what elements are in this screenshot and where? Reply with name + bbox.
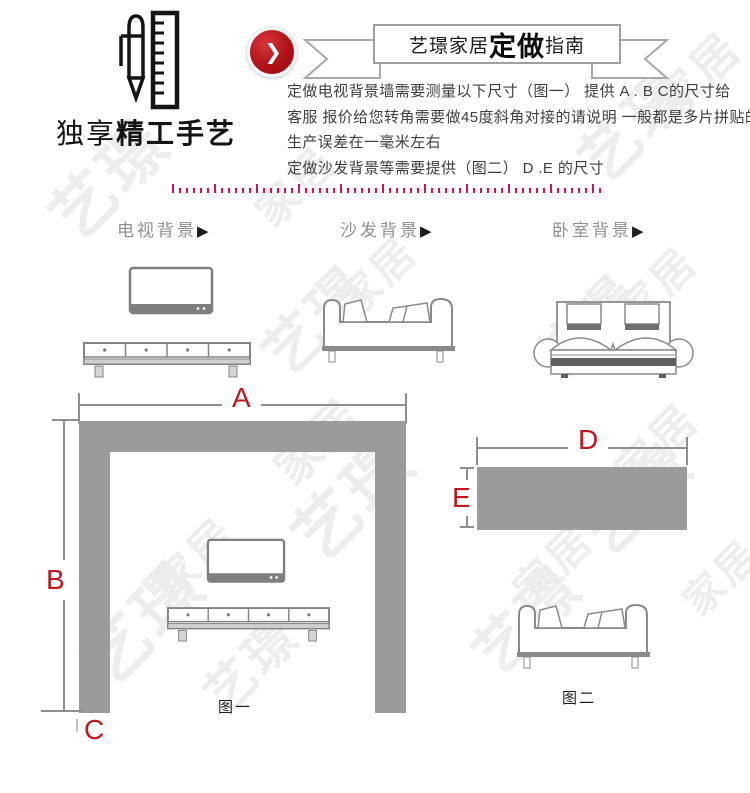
- intro-paragraph: 定做电视背景墙需要测量以下尺寸（图一） 提供 A . B C的尺寸给 客服 报价…: [287, 79, 739, 181]
- intro-line: 定做电视背景墙需要测量以下尺寸（图一） 提供 A . B C的尺寸给: [287, 79, 739, 105]
- category-sofa-background: 沙发背景▶: [340, 216, 432, 241]
- wall-left-leg: [79, 452, 110, 713]
- dim-tick: [476, 437, 478, 465]
- figure1-caption: 图一: [218, 696, 252, 717]
- dim-tick: [52, 419, 78, 421]
- intro-line: 定做沙发背景等需要提供（图二） D .E 的尺寸: [287, 156, 739, 182]
- chevron-right-icon: ❯: [264, 40, 282, 65]
- logo-slogan: 独享精工手艺: [56, 112, 276, 152]
- figure2-caption: 图二: [562, 687, 596, 708]
- category-bedroom-background: 卧室背景▶: [552, 216, 644, 241]
- tv-console-icon: [166, 606, 331, 647]
- logo-slogan-bold: 精工手艺: [116, 118, 236, 149]
- pen-ruler-icon: [116, 8, 184, 112]
- tv-console-icon: [82, 341, 252, 383]
- sofa-icon: [510, 598, 660, 670]
- tv-icon: [128, 266, 214, 322]
- triangle-right-icon: ▶: [197, 223, 209, 240]
- dim-tick: [460, 526, 474, 528]
- banner-suffix: 指南: [545, 31, 585, 58]
- wall-top-bar: [79, 421, 406, 452]
- sofa-wall-panel: [477, 467, 687, 530]
- play-button[interactable]: ❯: [247, 27, 297, 77]
- banner-title: 艺璟家居定做指南: [373, 24, 621, 64]
- dim-tick: [460, 467, 474, 469]
- page: { "logo": { "text_light": "独享", "text_bo…: [0, 0, 750, 793]
- category-label: 卧室背景: [552, 221, 632, 240]
- logo-slogan-light: 独享: [56, 118, 116, 149]
- category-label: 沙发背景: [340, 221, 420, 240]
- dim-label-c: C: [78, 716, 110, 744]
- tv-icon: [206, 538, 286, 590]
- dim-label-a: A: [222, 382, 261, 414]
- dim-tick: [686, 437, 688, 465]
- dim-tick: [405, 393, 407, 424]
- intro-line: 客服 报价给您转角需要做45度斜角对接的请说明 一般都是多片拼贴的: [287, 105, 739, 131]
- dim-tick: [41, 710, 83, 712]
- dotted-separator: [172, 184, 602, 193]
- dim-tick: [78, 393, 80, 424]
- dim-label-e: E: [448, 480, 475, 516]
- intro-line: 生产误差在一毫米左右: [287, 130, 739, 156]
- bed-icon: [531, 296, 696, 378]
- figure2-sofa-wall-diagram: D E 图二: [450, 430, 730, 730]
- triangle-right-icon: ▶: [632, 223, 644, 240]
- banner-brand: 艺璟家居: [409, 31, 489, 58]
- tv-wall-drawing: [82, 266, 252, 383]
- wall-right-leg: [375, 452, 406, 713]
- triangle-right-icon: ▶: [420, 223, 432, 240]
- dim-label-d: D: [568, 424, 608, 456]
- dim-label-b: B: [42, 560, 69, 600]
- banner-keyword: 定做: [489, 25, 545, 64]
- sofa-icon: [315, 292, 465, 364]
- category-label: 电视背景: [117, 221, 197, 240]
- category-tv-background: 电视背景▶: [117, 216, 209, 241]
- figure1-tv-wall-diagram: A B C 图一: [40, 388, 420, 758]
